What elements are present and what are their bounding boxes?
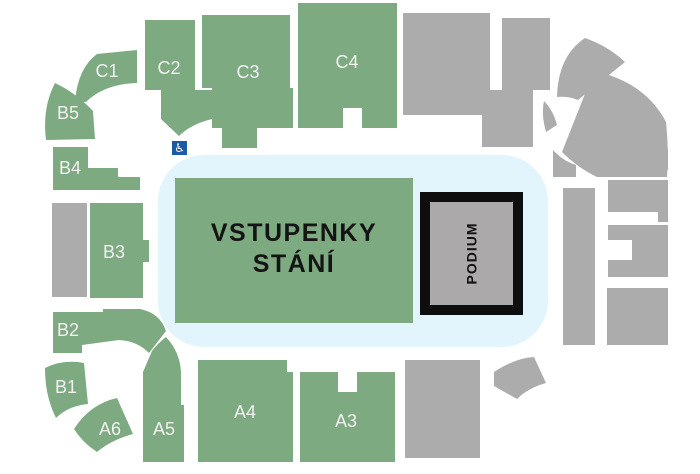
section-A6[interactable]: A6 (74, 398, 133, 452)
section-C4-label: C4 (335, 52, 358, 72)
gray-section-left-bar (52, 203, 87, 297)
gray-section-right-vertical-bar (563, 188, 595, 345)
section-C3-label: C3 (236, 62, 259, 82)
seating-map-canvas: C1 C2 C3 C4 B5 B4 B3 B2 B1 A6 A5 A4 (0, 0, 700, 474)
section-A4-label: A4 (234, 402, 256, 422)
section-B2[interactable]: B2 (53, 309, 166, 353)
gray-section-right-r1 (600, 148, 668, 170)
gray-section-bottom-block (405, 360, 480, 458)
section-B1[interactable]: B1 (45, 362, 88, 418)
gray-section-top-1 (403, 13, 490, 115)
section-C1[interactable]: C1 (75, 50, 137, 102)
section-C2[interactable]: C2 (145, 20, 212, 136)
wheelchair-accessible-icon[interactable]: ♿ (172, 141, 187, 155)
section-C1-label: C1 (95, 61, 118, 81)
section-B1-label: B1 (55, 377, 77, 397)
standing-area-label-line2: STÁNÍ (253, 249, 336, 278)
gray-section-right-r4 (607, 288, 668, 345)
section-C2-label: C2 (157, 58, 180, 78)
section-C4[interactable]: C4 (298, 3, 397, 128)
gray-section-top-2 (482, 18, 550, 147)
section-A5[interactable]: A5 (143, 337, 184, 462)
section-B4-label: B4 (59, 158, 81, 178)
section-C2-shape (145, 20, 212, 136)
podium-label: PODIUM (464, 223, 480, 285)
standing-area-label-line1: VSTUPENKY (211, 219, 377, 247)
gray-section-right-r2 (608, 180, 668, 222)
gray-section-right-r3 (608, 225, 668, 277)
seating-map-page: C1 C2 C3 C4 B5 B4 B3 B2 B1 A6 A5 A4 (0, 0, 700, 474)
section-A3-label: A3 (335, 411, 357, 431)
gray-section-corner-sliver-1 (543, 101, 557, 132)
section-B5-label: B5 (57, 103, 79, 123)
section-A3[interactable]: A3 (300, 372, 395, 462)
podium: PODIUM (420, 192, 523, 315)
section-A6-label: A6 (99, 419, 121, 439)
section-C3[interactable]: C3 (202, 15, 293, 148)
section-B3[interactable]: B3 (90, 203, 149, 298)
section-A5-shape (143, 337, 184, 462)
standing-area[interactable]: VSTUPENKY STÁNÍ (175, 178, 413, 323)
section-B2-label: B2 (57, 320, 79, 340)
section-A5-label: A5 (153, 419, 175, 439)
gray-section-bottom-wedge (494, 357, 546, 399)
section-B4[interactable]: B4 (53, 147, 140, 190)
wheelchair-icon-glyph: ♿ (174, 141, 185, 155)
section-B3-label: B3 (103, 242, 125, 262)
section-A4[interactable]: A4 (198, 360, 293, 462)
